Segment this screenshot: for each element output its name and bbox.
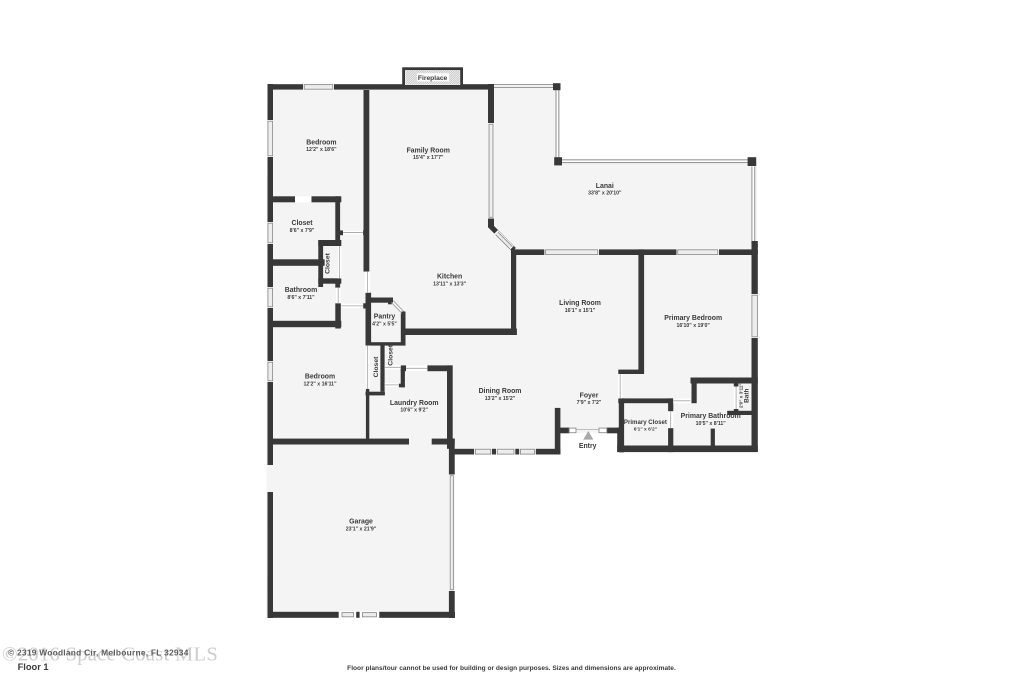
svg-text:2'0" x 3'11": 2'0" x 3'11" [739,383,744,408]
svg-text:Entry: Entry [579,443,597,450]
svg-text:Primary Bedroom: Primary Bedroom [664,315,722,322]
svg-text:6'1" x 6'2": 6'1" x 6'2" [634,426,657,432]
svg-text:Garage: Garage [349,519,373,526]
svg-text:Foyer: Foyer [580,393,599,400]
svg-text:Bathroom: Bathroom [285,287,318,294]
svg-text:10'6" x 9'2": 10'6" x 9'2" [400,408,428,414]
svg-text:Pantry: Pantry [374,314,396,321]
svg-text:4'2" x 5'5": 4'2" x 5'5" [372,322,397,328]
svg-text:8'6" x 7'9": 8'6" x 7'9" [290,228,315,234]
svg-text:12'2" x 18'6": 12'2" x 18'6" [306,147,337,153]
svg-text:Floor 1: Floor 1 [18,662,49,672]
svg-text:7'9" x 7'2": 7'9" x 7'2" [577,400,602,406]
svg-text:Primary Bathroom: Primary Bathroom [681,413,741,420]
svg-text:Floor plans/tour cannot be use: Floor plans/tour cannot be used for buil… [347,665,676,672]
svg-text:Kitchen: Kitchen [437,274,462,281]
svg-text:12'2" x 16'11": 12'2" x 16'11" [303,381,337,387]
svg-text:© 2319 Woodland Cir, Melbourne: © 2319 Woodland Cir, Melbourne, FL 32934 [8,647,189,657]
svg-text:Primary Closet: Primary Closet [624,419,667,426]
svg-text:Closet: Closet [388,344,395,366]
svg-text:Fireplace: Fireplace [418,75,448,82]
svg-text:Closet: Closet [291,220,313,227]
svg-text:33'8" x 20'10": 33'8" x 20'10" [588,191,622,197]
svg-text:8'6" x 7'11": 8'6" x 7'11" [287,295,315,301]
svg-text:Lanai: Lanai [596,183,614,190]
svg-text:Bedroom: Bedroom [306,139,336,146]
svg-text:16'1" x 15'1": 16'1" x 15'1" [565,308,596,314]
svg-text:16'10" x 19'0": 16'10" x 19'0" [677,323,711,329]
svg-text:Dining Room: Dining Room [479,388,522,395]
svg-text:23'1" x 21'9": 23'1" x 21'9" [346,526,377,532]
svg-text:13'2" x 15'2": 13'2" x 15'2" [485,396,516,402]
svg-text:13'11" x 13'3": 13'11" x 13'3" [433,281,467,287]
svg-text:Living Room: Living Room [559,300,601,307]
svg-text:Laundry Room: Laundry Room [390,400,439,407]
svg-text:Bedroom: Bedroom [305,374,335,381]
svg-text:Closet: Closet [325,252,332,274]
svg-text:Bath: Bath [744,389,751,403]
svg-text:Closet: Closet [373,356,380,378]
svg-text:10'5" x 8'11": 10'5" x 8'11" [696,421,727,427]
svg-text:15'4" x 17'7": 15'4" x 17'7" [413,155,444,161]
svg-text:Family Room: Family Room [407,147,450,154]
